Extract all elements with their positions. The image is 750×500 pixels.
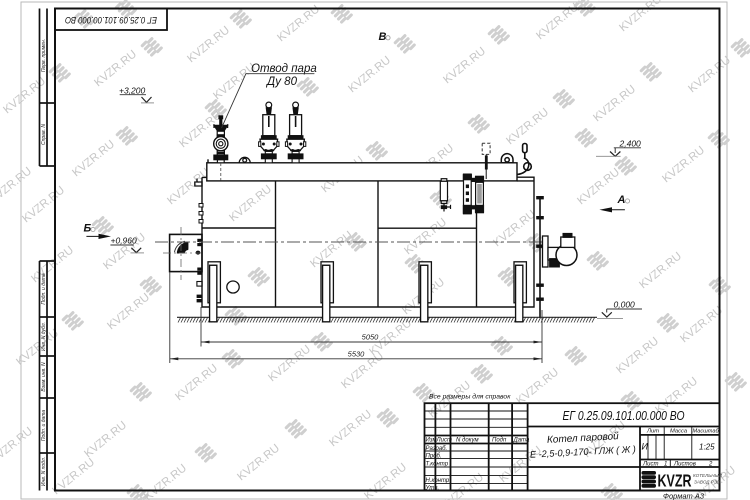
svg-text:KVZR.RU: KVZR.RU xyxy=(165,166,212,207)
svg-text:KVZR.RU: KVZR.RU xyxy=(637,250,684,291)
svg-text:2: 2 xyxy=(708,461,713,467)
svg-text:KVZR.RU: KVZR.RU xyxy=(660,144,707,185)
svg-text:ЕГ 0.25.09.101.00.000 ВО: ЕГ 0.25.09.101.00.000 ВО xyxy=(563,408,685,423)
svg-text:Масштаб: Масштаб xyxy=(693,429,720,435)
svg-text:Масса: Масса xyxy=(670,429,688,435)
svg-text:KVZR.RU: KVZR.RU xyxy=(575,166,622,207)
svg-text:KVZR.RU: KVZR.RU xyxy=(82,419,129,460)
svg-text:KVZR.RU: KVZR.RU xyxy=(327,408,374,449)
svg-text:Т.контр: Т.контр xyxy=(426,462,449,468)
svg-text:Отвод пара: Отвод пара xyxy=(251,63,317,75)
svg-text:2,400: 2,400 xyxy=(619,138,642,148)
svg-text:Лит: Лит xyxy=(646,429,659,435)
svg-text:Проб.: Проб. xyxy=(426,454,442,460)
svg-text:KVZR.RU: KVZR.RU xyxy=(92,48,139,89)
svg-text:KVZR.RU: KVZR.RU xyxy=(617,0,664,34)
svg-text:0,000: 0,000 xyxy=(614,300,636,310)
svg-text:KVZR.RU: KVZR.RU xyxy=(227,183,274,224)
svg-text:ЕГ 0.25.09.101.00.000 ВО: ЕГ 0.25.09.101.00.000 ВО xyxy=(65,14,157,25)
svg-text:Н.контр: Н.контр xyxy=(426,478,450,484)
svg-text:Лист: Лист xyxy=(436,438,452,444)
svg-text:Формат А3: Формат А3 xyxy=(663,492,705,500)
svg-text:Подп. и дата: Подп. и дата xyxy=(41,410,47,442)
svg-text:Подп: Подп xyxy=(492,438,507,444)
svg-text:В: В xyxy=(379,31,387,43)
svg-text:1:25: 1:25 xyxy=(699,443,715,452)
svg-text:Взам. инв. N: Взам. инв. N xyxy=(41,362,47,392)
svg-text:КОТЕЛЬНЫЙ: КОТЕЛЬНЫЙ xyxy=(693,471,723,478)
svg-text:KVZR.RU: KVZR.RU xyxy=(0,165,34,206)
svg-text:+3,200: +3,200 xyxy=(119,86,146,96)
svg-text:KVZR.RU: KVZR.RU xyxy=(686,54,733,95)
svg-text:Лист: Лист xyxy=(642,461,658,467)
svg-text:KVZR.RU: KVZR.RU xyxy=(29,244,76,285)
svg-text:KVZR.RU: KVZR.RU xyxy=(173,362,220,403)
svg-text:Б: Б xyxy=(84,223,92,235)
svg-text:KVZR.RU: KVZR.RU xyxy=(346,54,393,95)
svg-text:Справ. N: Справ. N xyxy=(41,124,47,145)
svg-text:KVZR.RU: KVZR.RU xyxy=(142,462,189,500)
svg-text:Изм: Изм xyxy=(426,438,437,444)
svg-text:Ду 80: Ду 80 xyxy=(265,76,298,88)
svg-text:5050: 5050 xyxy=(362,333,380,342)
svg-text:KVZR.RU: KVZR.RU xyxy=(362,461,409,500)
svg-text:Перв. примен.: Перв. примен. xyxy=(41,39,47,72)
svg-text:Листов: Листов xyxy=(673,461,696,467)
svg-text:Подп. и дата: Подп. и дата xyxy=(41,273,47,305)
svg-text:Инв. N дубл.: Инв. N дубл. xyxy=(41,322,47,351)
svg-text:Разраб.: Разраб. xyxy=(426,446,448,452)
svg-text:KVZR.RU: KVZR.RU xyxy=(591,83,638,124)
svg-text:ЗАВОД РЭП: ЗАВОД РЭП xyxy=(694,480,721,485)
svg-text:5530: 5530 xyxy=(348,349,366,358)
svg-text:А: А xyxy=(617,194,626,206)
svg-text:KVZR.RU: KVZR.RU xyxy=(614,335,661,376)
svg-text:И: И xyxy=(642,442,649,452)
svg-text:KVZR.RU: KVZR.RU xyxy=(514,366,561,407)
svg-text:N докум: N докум xyxy=(456,438,479,444)
svg-text:1: 1 xyxy=(664,461,667,467)
svg-text:KVZR: KVZR xyxy=(658,471,692,491)
svg-text:KVZR.RU: KVZR.RU xyxy=(1,75,48,116)
svg-text:KVZR.RU: KVZR.RU xyxy=(20,184,67,225)
svg-text:KVZR.RU: KVZR.RU xyxy=(266,343,313,384)
svg-text:Дата: Дата xyxy=(513,438,530,444)
svg-text:KVZR.RU: KVZR.RU xyxy=(0,425,35,466)
svg-text:Все размеры для справок: Все размеры для справок xyxy=(429,393,511,401)
svg-text:KVZR.RU: KVZR.RU xyxy=(678,304,725,345)
svg-text:KVZR.RU: KVZR.RU xyxy=(70,138,117,179)
svg-text:KVZR.RU: KVZR.RU xyxy=(504,106,551,147)
svg-text:KVZR.RU: KVZR.RU xyxy=(534,1,581,42)
svg-text:KVZR.RU: KVZR.RU xyxy=(105,291,152,332)
svg-text:Инв. N подл.: Инв. N подл. xyxy=(41,457,47,486)
svg-text:Е -2,5-0,9-170- ГЛЖ ( Ж ): Е -2,5-0,9-170- ГЛЖ ( Ж ) xyxy=(530,444,636,461)
svg-text:KVZR.RU: KVZR.RU xyxy=(185,24,232,65)
svg-text:KVZR.RU: KVZR.RU xyxy=(402,216,449,257)
svg-text:KVZR.RU: KVZR.RU xyxy=(441,45,488,86)
svg-text:Утв.: Утв. xyxy=(425,486,440,492)
svg-text:KVZR.RU: KVZR.RU xyxy=(235,442,282,483)
svg-text:+0,960: +0,960 xyxy=(111,235,138,245)
